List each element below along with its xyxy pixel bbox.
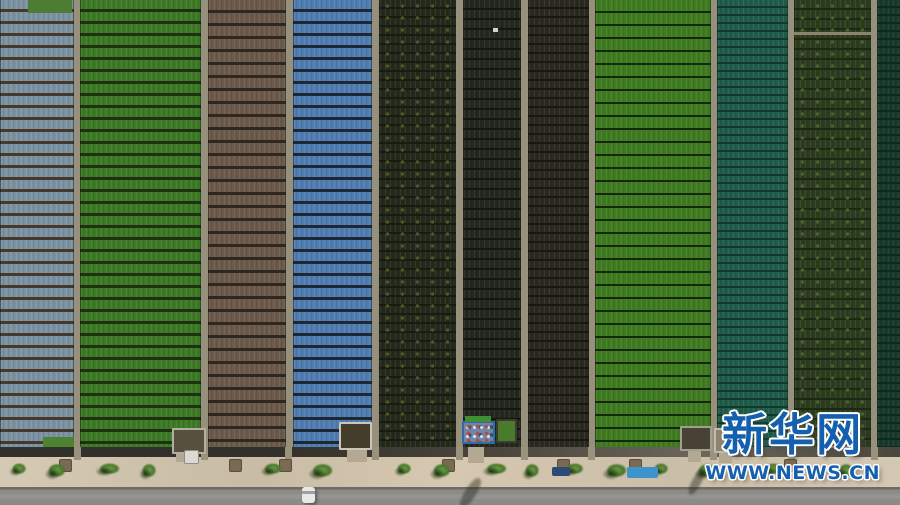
white-van [302, 487, 315, 503]
field-strip-blue-gray-mulch [0, 0, 74, 447]
top-green-patch [28, 0, 72, 13]
field-strip-green-crop [80, 0, 201, 447]
tree-pit [229, 459, 242, 472]
watermark: 新华网 WWW.NEWS.CN [705, 412, 880, 483]
field-strip-brown-soil [208, 0, 286, 447]
roadside-tree [42, 461, 69, 482]
field-strip-dark-crop-1 [379, 0, 456, 447]
watermark-site-url: WWW.NEWS.CN [705, 464, 880, 483]
field-shed [339, 422, 372, 450]
roadside-tree [392, 461, 414, 478]
path-stub [456, 447, 463, 460]
parked-vehicle [184, 450, 199, 464]
shed-apron [347, 450, 367, 462]
seedling-bar [465, 416, 491, 422]
field-strip-dark-teal-crop [877, 0, 900, 447]
shed-apron [468, 447, 484, 463]
path-stub [372, 447, 379, 460]
field-strip-olive-crop [794, 0, 871, 447]
bottom-green-patch [43, 437, 74, 447]
blue-tarp [552, 467, 570, 476]
field-strip-dark-crop-2 [463, 0, 521, 447]
shed-apron [688, 450, 701, 462]
field-strip-dark-soil [528, 0, 589, 447]
roadside-tree [137, 461, 159, 482]
field-paths-background [0, 0, 900, 447]
roadside-tree [479, 461, 511, 478]
path-stub [588, 447, 595, 460]
blue-tarp [627, 467, 658, 478]
roadside-tree [258, 461, 285, 478]
roadside-tree [92, 461, 124, 478]
field-strip-blue-mulch [293, 0, 372, 447]
path-cross-line [794, 32, 871, 35]
roadside-tree [427, 461, 454, 482]
field-strip-teal-crop [717, 0, 788, 447]
aerial-photo-farm-fields: 新华网 WWW.NEWS.CN [0, 0, 900, 505]
watermark-site-name: 新华网 [722, 412, 863, 457]
roadside-tree [520, 461, 542, 482]
field-strip-bright-green [595, 0, 711, 447]
road [0, 487, 900, 505]
roadside-tree [7, 461, 29, 478]
path-stub [74, 447, 81, 460]
roadside-tree [305, 461, 337, 482]
field-shed [462, 421, 495, 444]
white-dot-object [493, 28, 498, 32]
field-shed [496, 419, 517, 443]
path-stub [521, 447, 528, 460]
